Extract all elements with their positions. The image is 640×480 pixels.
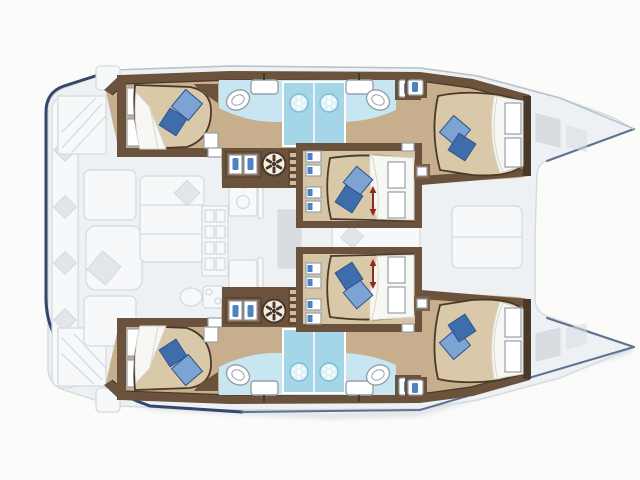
wardrobe-panel [388,192,405,218]
sink [251,381,278,395]
wardrobe-panel [388,257,405,283]
aft-cabin [127,84,218,149]
shower-head-icon [320,94,338,112]
hull-bow-wall [523,96,531,176]
nightstand [204,327,218,342]
wardrobe-panel [388,287,405,313]
jug-icon [412,82,418,92]
center-cabin-wall-left [296,143,303,228]
center-cabin-wall-bottom [296,247,422,254]
center-cabin-wall-left [296,247,303,332]
center-cabin-door-gap [402,143,414,151]
hull-bow-wall [523,299,531,379]
shower-head-icon [290,94,308,112]
hull-aft-wall [117,318,126,400]
jug-icon [248,158,254,170]
toiletries-cabinet [405,77,427,98]
center-cabin-door-gap [402,324,414,332]
jug-icon [248,305,254,317]
fridge [229,260,257,290]
vent-fan-icon [263,300,286,323]
forward-cabin-step [417,167,427,176]
center-cabin-wall-bottom [296,221,422,228]
wardrobe-panel [505,103,521,134]
vent-fan-icon [263,153,286,176]
center-cabin [296,247,422,332]
center-cabin-wall-right [415,143,422,228]
jug-icon [233,305,239,317]
nightstand [204,133,218,148]
aft-galley-basin [180,288,202,306]
forward-cabin-step [417,299,427,308]
wardrobe-panel [505,308,521,337]
cockpit-table [86,226,142,290]
cockpit-side-seat-1 [84,170,136,220]
hull-aft-wall [117,75,126,157]
aft-cabin [127,326,218,391]
center-cabin-wall-right [415,247,422,332]
center-cabin [296,143,422,228]
toiletries-cabinet [405,377,427,398]
shower-head-icon [290,363,308,381]
catamaran-floor-plan [0,0,640,480]
sink [251,80,278,94]
wardrobe-panel [388,162,405,188]
bow-hatch [536,114,560,147]
galley-counter [202,206,228,276]
cabin-door-gap [208,318,222,327]
bow-inner-edges [547,129,634,347]
shower-head-icon [320,363,338,381]
wardrobe-panel [505,138,521,167]
wardrobe-panel [505,341,521,372]
bow-hatch [536,328,560,361]
jug-icon [233,158,239,170]
cabin-door-gap [208,148,222,157]
jug-icon [412,383,418,393]
